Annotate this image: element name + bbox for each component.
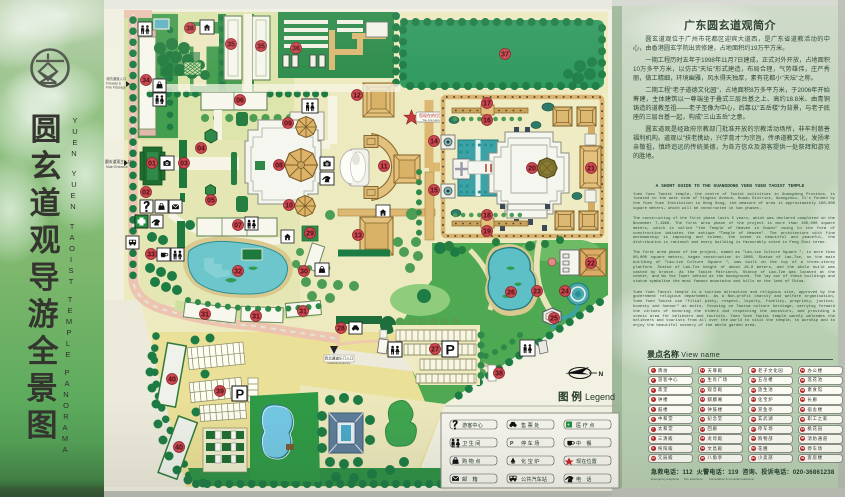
svg-text:35: 35	[257, 44, 265, 51]
svg-text:医 疗 点: 医 疗 点	[576, 421, 594, 429]
svg-text:游: 游	[28, 297, 59, 332]
svg-text:电 话: 电 话	[576, 475, 592, 483]
svg-text:N: N	[70, 202, 75, 211]
svg-text:39: 39	[216, 389, 224, 396]
svg-text:M: M	[62, 434, 68, 443]
svg-text:31: 31	[252, 314, 260, 321]
svg-text:N: N	[599, 371, 604, 378]
svg-text:16: 16	[483, 118, 491, 125]
svg-text:西北通道乐门入口: 西北通道乐门入口	[325, 356, 354, 361]
svg-text:37: 37	[501, 52, 509, 59]
svg-text:游客中心: 游客中心	[462, 421, 483, 429]
svg-text:A: A	[62, 445, 67, 454]
svg-text:40: 40	[168, 377, 176, 384]
svg-text:22: 22	[587, 261, 595, 268]
svg-text:32: 32	[234, 269, 242, 276]
svg-text:导: 导	[29, 260, 60, 295]
svg-text:06: 06	[236, 98, 244, 105]
svg-text:04: 04	[197, 146, 205, 153]
svg-text:17: 17	[483, 101, 491, 108]
svg-text:11: 11	[380, 164, 388, 171]
svg-text:E: E	[70, 191, 75, 200]
svg-text:购 物 点: 购 物 点	[462, 457, 480, 465]
svg-text:P: P	[446, 342, 455, 358]
svg-text:08: 08	[275, 163, 283, 170]
svg-text:40: 40	[175, 445, 183, 452]
svg-text:全: 全	[27, 334, 60, 369]
svg-text:卫 生 间: 卫 生 间	[462, 439, 480, 447]
svg-text:36: 36	[292, 46, 300, 53]
svg-text:You Are Here: You Are Here	[422, 118, 440, 122]
svg-text:R: R	[63, 412, 69, 421]
svg-text:01: 01	[148, 161, 156, 168]
svg-text:23: 23	[533, 289, 541, 296]
svg-text:+: +	[567, 423, 570, 429]
svg-text:18: 18	[483, 213, 491, 220]
svg-text:A: A	[64, 379, 69, 388]
svg-text:29: 29	[306, 231, 314, 238]
svg-text:T: T	[69, 277, 74, 286]
svg-text:38: 38	[495, 371, 503, 378]
svg-text:Fire Passage: Fire Passage	[106, 86, 126, 90]
svg-text:Y: Y	[72, 116, 77, 125]
svg-text:E: E	[72, 138, 77, 147]
svg-text:31: 31	[201, 312, 209, 319]
svg-text:图 例: 图 例	[558, 390, 582, 403]
svg-text:E: E	[65, 350, 70, 359]
svg-text:U: U	[71, 180, 76, 189]
svg-text:07: 07	[234, 223, 242, 230]
svg-text:26: 26	[507, 290, 515, 297]
svg-text:35: 35	[227, 42, 235, 49]
svg-text:邮 箱: 邮 箱	[462, 475, 478, 483]
svg-text:N: N	[71, 149, 76, 158]
svg-text:道: 道	[30, 186, 61, 221]
svg-text:圆: 圆	[31, 112, 62, 147]
svg-text:化 宝 炉: 化 宝 炉	[521, 457, 539, 465]
svg-text:公共汽车站: 公共汽车站	[521, 475, 547, 483]
svg-text:30: 30	[300, 269, 308, 276]
svg-text:34: 34	[142, 78, 150, 85]
svg-text:03: 03	[180, 161, 188, 168]
svg-text:Legend: Legend	[585, 392, 615, 402]
svg-text:Y: Y	[71, 169, 76, 178]
svg-text:31: 31	[299, 309, 307, 316]
svg-text:E: E	[67, 306, 72, 315]
svg-text:Main Entrance: Main Entrance	[106, 165, 128, 169]
svg-text:38: 38	[186, 26, 194, 33]
svg-text:09: 09	[284, 121, 292, 128]
svg-text:P: P	[510, 441, 514, 447]
svg-text:21: 21	[587, 166, 595, 173]
svg-text:S: S	[68, 266, 73, 275]
svg-text:12: 12	[353, 93, 361, 100]
svg-text:05: 05	[207, 198, 215, 205]
svg-text:33: 33	[147, 252, 155, 259]
svg-text:25: 25	[550, 316, 558, 323]
svg-text:Gateway Entrance: Gateway Entrance	[327, 361, 350, 365]
svg-text:20: 20	[528, 166, 536, 173]
svg-text:O: O	[69, 244, 75, 253]
svg-text:A: A	[69, 233, 74, 242]
svg-text:P: P	[236, 387, 245, 402]
svg-text:景: 景	[27, 371, 58, 406]
svg-text:T: T	[68, 295, 73, 304]
svg-text:中 餐: 中 餐	[576, 439, 592, 447]
svg-text:P: P	[64, 368, 69, 377]
svg-text:观: 观	[30, 223, 61, 258]
svg-text:T: T	[70, 222, 75, 231]
svg-text:27: 27	[431, 347, 439, 354]
svg-text:02: 02	[142, 190, 150, 197]
svg-text:现在位置: 现在位置	[576, 457, 597, 465]
svg-text:停 车 场: 停 车 场	[521, 439, 539, 447]
svg-text:售 票 处: 售 票 处	[521, 421, 539, 429]
svg-text:消防通道入口: 消防通道入口	[106, 76, 126, 81]
svg-text:28: 28	[337, 326, 345, 333]
svg-text:图: 图	[27, 408, 58, 443]
svg-text:M: M	[66, 317, 72, 326]
svg-text:14: 14	[430, 139, 438, 146]
svg-text:N: N	[63, 390, 68, 399]
svg-text:19: 19	[483, 229, 491, 236]
svg-text:O: O	[63, 401, 69, 410]
svg-text:圆玄道观主入口: 圆玄道观主入口	[105, 159, 132, 164]
svg-text:I: I	[70, 255, 72, 264]
svg-text:P: P	[66, 328, 71, 337]
svg-text:24: 24	[561, 289, 569, 296]
svg-text:13: 13	[354, 233, 362, 240]
svg-text:15: 15	[430, 188, 438, 195]
svg-text:10: 10	[285, 203, 293, 210]
svg-text:L: L	[66, 339, 70, 348]
svg-text:玄: 玄	[31, 149, 62, 184]
svg-text:A: A	[62, 423, 67, 432]
svg-text:U: U	[72, 127, 77, 136]
